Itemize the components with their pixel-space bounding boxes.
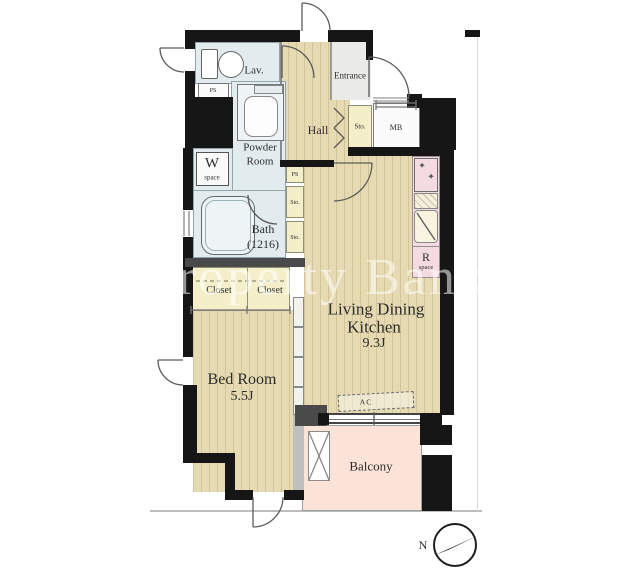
room-label-mb: MB (390, 124, 402, 132)
door-arc-bedroom-exit-icon (253, 497, 283, 527)
wall-window-cap-left (318, 413, 329, 425)
compass-icon (433, 523, 477, 567)
wall-entrance-stub (366, 30, 373, 60)
wall-bedroom-right-gray (293, 415, 304, 500)
room-label-powder-1: Powder (243, 143, 277, 154)
wall-top-right-corner (465, 30, 480, 37)
burner-icon: ✦ (418, 163, 426, 172)
room-label-sto-lower: Sto. (290, 235, 300, 241)
watermark-text: Property Bank (146, 248, 487, 307)
wall-bottom-right (284, 490, 304, 500)
sliding-door-panel (293, 327, 304, 357)
kitchen-sink-icon (414, 210, 438, 243)
balcony-window-icon (329, 413, 420, 424)
burner-icon: ✦ (427, 174, 435, 183)
wall-left-column (185, 97, 233, 148)
room-label-ps-mid: PS (292, 172, 299, 178)
wall-left-2 (185, 71, 195, 99)
wall-balcony-right-lower (422, 455, 452, 511)
room-label-ldk-2: Kitchen (347, 319, 401, 336)
wall-under-storage (348, 147, 443, 156)
wall-left-3 (183, 148, 193, 210)
window-bath-icon (184, 211, 189, 236)
room-label-w: W (205, 157, 219, 172)
wall-bottom-left (225, 490, 253, 500)
room-label-entrance: Entrance (334, 72, 366, 81)
toilet-bowl-icon (218, 51, 244, 78)
toilet-tank-icon (201, 49, 218, 79)
room-label-bedroom-size: 5.5J (231, 390, 254, 404)
room-label-powder-2: Room (247, 157, 274, 168)
door-arc-north-icon (302, 3, 330, 31)
wall-left-1 (185, 42, 195, 49)
sliding-door-panel (293, 357, 304, 387)
window-arc-lav-icon (160, 48, 184, 72)
room-label-w-space: space (204, 175, 220, 182)
wall-window-cap-right (420, 413, 442, 425)
room-label-ac: AC (360, 398, 372, 406)
room-label-hall-storage: Sto. (354, 124, 365, 131)
room-label-hall: Hall (308, 124, 329, 136)
window-arc-bedroom-icon (158, 360, 183, 385)
kitchen-counter-icon (414, 193, 438, 209)
balcony-partition-icon (308, 431, 330, 481)
wall-balcony-right-upper (420, 425, 452, 445)
room-label-ldk-size: 9.3J (363, 337, 386, 351)
room-label-bath-1: Bath (252, 223, 275, 235)
room-label-ps-top: PS (210, 88, 217, 94)
wall-top-left (185, 30, 300, 42)
wall-left-5 (183, 385, 197, 463)
room-label-lav: Lav. (244, 66, 263, 77)
floor-plan: Lav. Powder Room Bath (1216) Hall Entran… (0, 0, 640, 569)
door-arc-front-entrance-icon (369, 57, 409, 101)
washbasin-icon (237, 84, 284, 141)
compass-label: N (419, 539, 428, 551)
room-label-balcony: Balcony (349, 460, 392, 473)
wall-hall-bottom (280, 160, 334, 167)
room-label-sto-upper: Sto. (290, 200, 300, 206)
wall-mb-block (420, 98, 456, 150)
room-label-bedroom: Bed Room (208, 372, 277, 388)
